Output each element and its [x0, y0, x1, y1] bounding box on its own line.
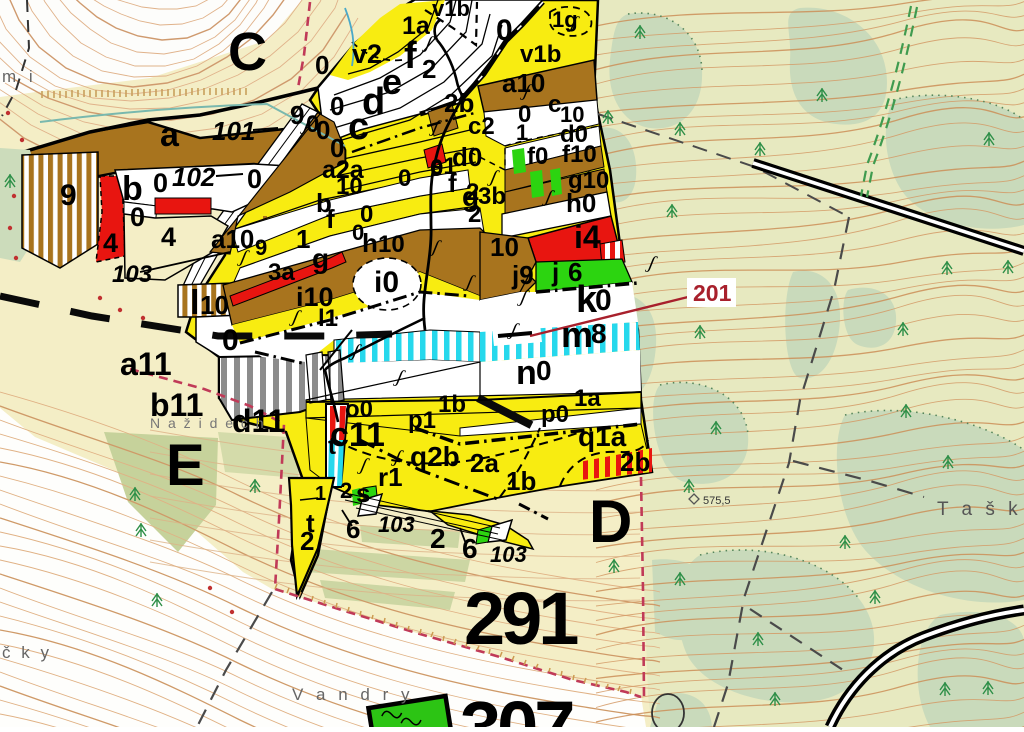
- svg-text:1a: 1a: [574, 385, 601, 412]
- svg-text:V a n d r y: V a n d r y: [292, 685, 413, 704]
- svg-text:D: D: [589, 488, 632, 555]
- svg-text:i4: i4: [574, 219, 601, 255]
- svg-text:m i: m i: [2, 67, 37, 86]
- svg-text:p0: p0: [541, 401, 569, 428]
- svg-text:102: 102: [172, 162, 216, 192]
- svg-text:0: 0: [222, 324, 239, 357]
- svg-text:1b: 1b: [438, 391, 466, 418]
- svg-text:0: 0: [247, 164, 262, 194]
- svg-text:2: 2: [300, 526, 314, 556]
- svg-text:201: 201: [693, 280, 732, 306]
- svg-text:2: 2: [422, 54, 436, 84]
- svg-text:0: 0: [352, 220, 364, 245]
- svg-text:0: 0: [330, 91, 344, 121]
- svg-text:t: t: [328, 433, 336, 460]
- svg-text:1: 1: [516, 120, 528, 145]
- svg-text:575,5: 575,5: [703, 495, 731, 507]
- svg-text:f10: f10: [562, 141, 597, 168]
- svg-text:č k y: č k y: [2, 643, 52, 662]
- svg-text:1b: 1b: [506, 466, 536, 496]
- svg-text:10: 10: [490, 232, 519, 262]
- svg-text:0: 0: [496, 14, 513, 47]
- svg-text:v1b: v1b: [432, 0, 470, 21]
- svg-text:307: 307: [460, 686, 572, 727]
- svg-text:0: 0: [398, 165, 411, 192]
- svg-text:4: 4: [161, 222, 176, 252]
- svg-text:1: 1: [315, 483, 326, 505]
- svg-text:2a: 2a: [470, 448, 499, 478]
- svg-text:q2b: q2b: [410, 441, 460, 472]
- svg-text:p1: p1: [408, 407, 436, 434]
- svg-text:9: 9: [290, 100, 304, 130]
- svg-text:0: 0: [315, 50, 329, 80]
- svg-text:2b: 2b: [620, 447, 650, 477]
- svg-text:s: s: [356, 478, 370, 508]
- svg-text:3a: 3a: [268, 259, 295, 286]
- svg-text:f: f: [326, 204, 335, 234]
- svg-text:m: m: [561, 314, 593, 355]
- svg-text:E: E: [166, 433, 205, 498]
- svg-text:n: n: [516, 354, 537, 392]
- svg-text:a10: a10: [502, 68, 545, 98]
- svg-text:103: 103: [112, 261, 153, 288]
- svg-text:f: f: [448, 168, 457, 198]
- svg-text:0: 0: [153, 168, 168, 198]
- svg-text:1: 1: [296, 224, 310, 254]
- svg-text:9: 9: [255, 235, 267, 260]
- svg-text:v2: v2: [352, 39, 382, 69]
- svg-text:0: 0: [306, 111, 319, 138]
- svg-text:10: 10: [200, 290, 229, 320]
- svg-text:2: 2: [430, 523, 446, 554]
- svg-text:h0: h0: [566, 188, 596, 218]
- svg-text:j: j: [551, 257, 559, 287]
- svg-text:a10: a10: [211, 224, 254, 254]
- svg-text:103: 103: [378, 512, 415, 537]
- svg-text:3b: 3b: [478, 183, 506, 210]
- svg-text:f: f: [404, 35, 417, 77]
- svg-text:a11: a11: [120, 346, 172, 382]
- svg-text:l1: l1: [318, 305, 338, 332]
- svg-text:v1b: v1b: [520, 41, 561, 68]
- svg-text:2: 2: [468, 201, 481, 228]
- svg-text:c: c: [348, 106, 369, 148]
- svg-text:f0: f0: [527, 143, 548, 170]
- svg-text:8: 8: [591, 318, 607, 349]
- svg-text:0: 0: [536, 355, 552, 386]
- svg-text:r1: r1: [378, 462, 403, 492]
- svg-text:j9: j9: [511, 260, 534, 290]
- svg-text:C: C: [228, 22, 267, 82]
- svg-text:h: h: [362, 228, 378, 258]
- svg-text:c11: c11: [330, 416, 385, 454]
- svg-text:c2: c2: [468, 113, 495, 140]
- svg-text:1g: 1g: [552, 7, 578, 32]
- svg-text:T a š k y: T a š k y: [937, 499, 1024, 520]
- svg-text:0: 0: [130, 202, 145, 232]
- svg-text:10: 10: [378, 231, 405, 258]
- svg-text:N a ž i d e c h: N a ž i d e c h: [150, 415, 266, 431]
- svg-text:0: 0: [595, 284, 612, 317]
- svg-text:4: 4: [103, 228, 118, 258]
- svg-text:101: 101: [212, 116, 255, 146]
- svg-text:g: g: [312, 243, 329, 274]
- svg-text:i0: i0: [374, 266, 399, 299]
- svg-text:l: l: [190, 284, 199, 322]
- svg-text:291: 291: [464, 577, 578, 660]
- svg-text:10: 10: [336, 173, 363, 200]
- svg-text:a: a: [160, 116, 180, 154]
- svg-text:103: 103: [490, 542, 527, 567]
- svg-text:2: 2: [340, 478, 352, 503]
- svg-text:9: 9: [60, 179, 77, 212]
